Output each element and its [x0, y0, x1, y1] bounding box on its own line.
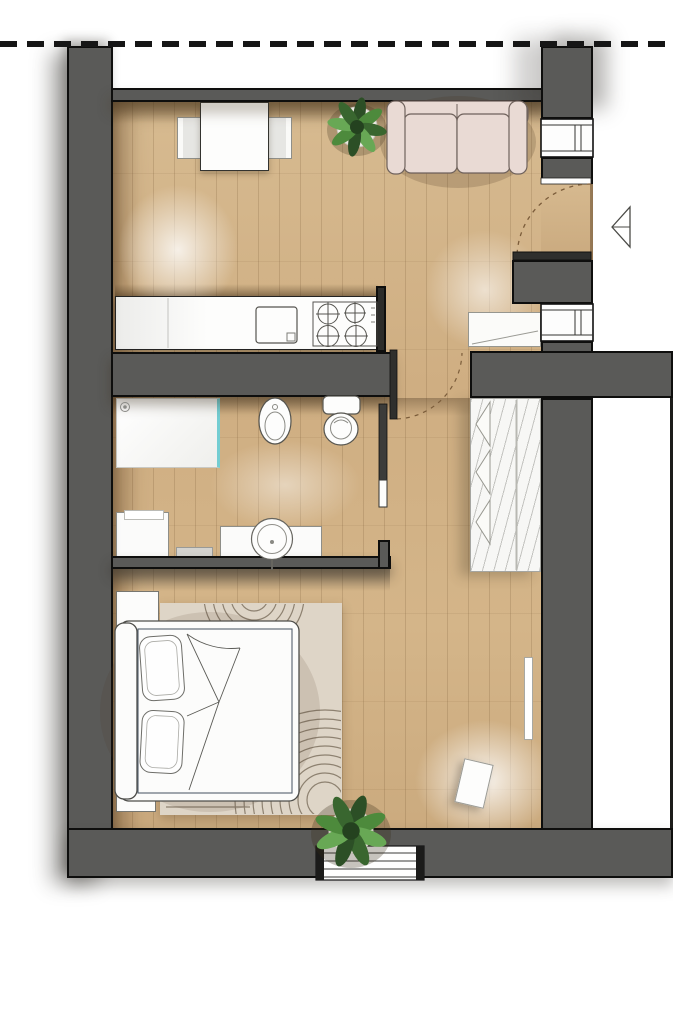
wardrobe: [470, 398, 541, 572]
entry-arrow-icon: [612, 207, 630, 247]
wall-top-living: [111, 88, 543, 102]
floor-plan: [0, 0, 673, 1009]
nightstand-top: [116, 591, 159, 626]
vanity: [220, 526, 322, 559]
wall-living-bath: [111, 352, 392, 397]
bedroom-rug: [160, 603, 342, 815]
nightstand-bottom: [116, 777, 156, 812]
wall-right-lower: [541, 398, 593, 878]
chair-right: [267, 117, 292, 159]
shower: [116, 398, 220, 468]
kitchen-counter: [115, 296, 378, 350]
hall-cabinet: [468, 312, 541, 347]
wall-bath-bed: [111, 556, 391, 569]
wall-bottom: [67, 828, 673, 878]
wall-bath-bed-stub: [378, 540, 390, 569]
wall-hall-tee: [470, 351, 673, 398]
chair-left: [177, 117, 202, 159]
wall-entry-block: [512, 260, 593, 304]
entrance-threshold: [541, 184, 590, 253]
wall-right-seg: [541, 157, 593, 184]
property-boundary-line: [0, 41, 673, 47]
washing-machine-top: [124, 510, 164, 520]
radiator: [524, 657, 533, 740]
wall-left: [67, 46, 113, 878]
dining-table: [200, 102, 269, 171]
wall-right-upper: [541, 46, 593, 119]
wall-kitchen-stub: [376, 286, 386, 352]
